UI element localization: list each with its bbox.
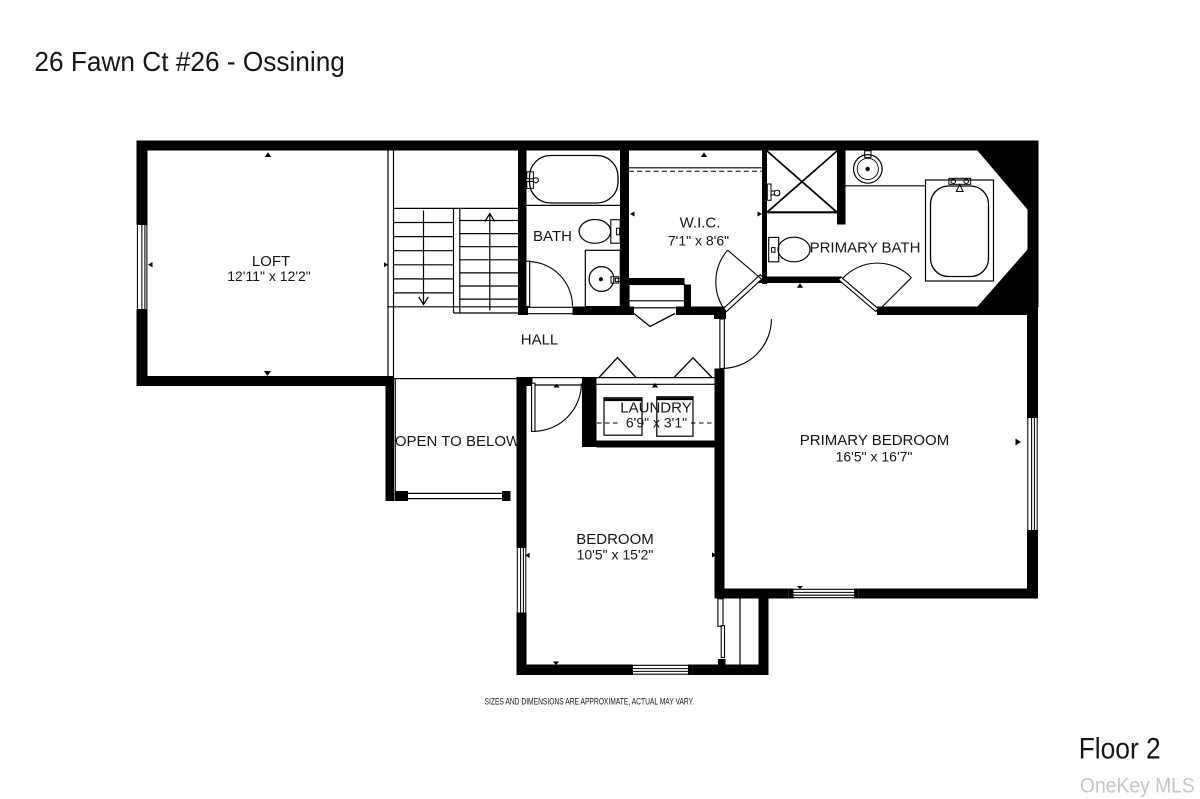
- svg-text:BATH: BATH: [533, 228, 572, 245]
- svg-text:HALL: HALL: [521, 332, 559, 349]
- svg-text:7'1" x 8'6": 7'1" x 8'6": [668, 233, 729, 249]
- svg-text:PRIMARY BATH: PRIMARY BATH: [810, 240, 921, 257]
- svg-text:16'5" x 16'7": 16'5" x 16'7": [836, 449, 913, 465]
- svg-text:26 Fawn Ct #26 - Ossining: 26 Fawn Ct #26 - Ossining: [34, 46, 345, 77]
- svg-text:Floor 2: Floor 2: [1079, 732, 1161, 765]
- svg-text:BEDROOM: BEDROOM: [576, 531, 654, 548]
- svg-text:10'5" x 15'2": 10'5" x 15'2": [577, 547, 654, 563]
- svg-text:6'9" x 3'1": 6'9" x 3'1": [626, 415, 687, 431]
- svg-text:12'11" x 12'2": 12'11" x 12'2": [227, 268, 311, 284]
- svg-text:SIZES AND DIMENSIONS ARE APPRO: SIZES AND DIMENSIONS ARE APPROXIMATE, AC…: [485, 696, 695, 706]
- svg-text:OPEN TO BELOW: OPEN TO BELOW: [395, 433, 521, 450]
- svg-text:W.I.C.: W.I.C.: [680, 215, 721, 232]
- svg-text:PRIMARY BEDROOM: PRIMARY BEDROOM: [800, 432, 949, 449]
- svg-text:OneKey MLS: OneKey MLS: [1080, 775, 1195, 798]
